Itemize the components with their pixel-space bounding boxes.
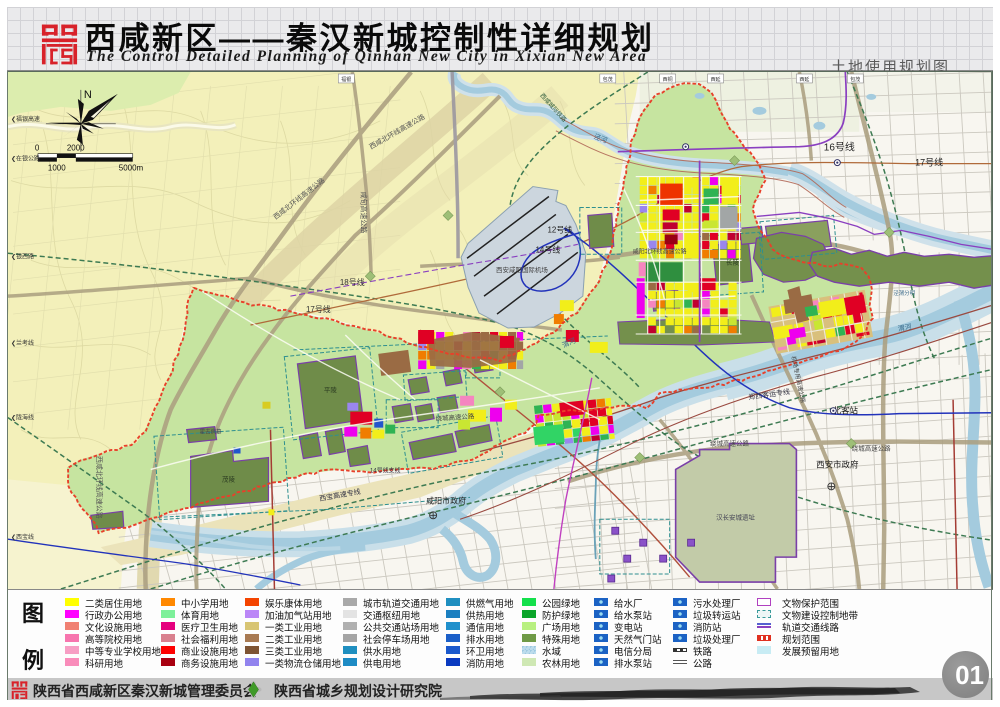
svg-text:❮西宝线: ❮西宝线 — [11, 533, 34, 541]
svg-text:包茂: 包茂 — [603, 76, 613, 83]
svg-text:福银: 福银 — [341, 76, 351, 83]
svg-text:17号线: 17号线 — [306, 304, 331, 314]
svg-text:西安市政府: 西安市政府 — [816, 459, 859, 469]
svg-text:长陵: 长陵 — [726, 257, 739, 266]
svg-text:16号线: 16号线 — [824, 141, 855, 154]
svg-text:14号线支线: 14号线支线 — [370, 466, 401, 474]
svg-text:西安咸阳国际机场: 西安咸阳国际机场 — [496, 265, 548, 274]
svg-text:1000: 1000 — [48, 164, 66, 173]
svg-text:0: 0 — [35, 144, 40, 153]
svg-text:西铜: 西铜 — [663, 76, 673, 83]
svg-text:西延: 西延 — [799, 76, 809, 83]
svg-text:霍去病墓: 霍去病墓 — [200, 428, 222, 436]
svg-text:咸阳市政府: 咸阳市政府 — [426, 495, 466, 505]
svg-text:平陵: 平陵 — [324, 385, 337, 394]
svg-text:西咸北环线高速公路: 西咸北环线高速公路 — [95, 456, 104, 519]
svg-text:2000: 2000 — [67, 144, 85, 153]
svg-text:绕城高速公路: 绕城高速公路 — [710, 439, 749, 448]
svg-text:茂陵: 茂陵 — [222, 474, 235, 483]
svg-text:18号线: 18号线 — [340, 277, 365, 287]
svg-text:N: N — [84, 89, 92, 101]
svg-text:西延: 西延 — [711, 76, 721, 83]
svg-text:包茂: 包茂 — [850, 76, 860, 83]
svg-text:❮在银公路: ❮在银公路 — [11, 155, 40, 163]
svg-text:5000m: 5000m — [119, 164, 144, 173]
svg-text:泾渭分明: 泾渭分明 — [893, 289, 915, 297]
svg-text:❮陇海线: ❮陇海线 — [11, 414, 34, 422]
svg-text:绕城高速公路: 绕城高速公路 — [852, 444, 891, 453]
svg-text:12号线: 12号线 — [547, 224, 572, 234]
svg-text:汉长安城遗址: 汉长安城遗址 — [716, 512, 755, 521]
svg-text:14号线: 14号线 — [535, 244, 560, 254]
svg-text:17号线: 17号线 — [915, 157, 943, 168]
svg-text:❮银西路: ❮银西路 — [11, 252, 34, 260]
svg-text:咸阳北环线高速公路: 咸阳北环线高速公路 — [633, 247, 687, 255]
svg-text:❮福银高速: ❮福银高速 — [11, 115, 40, 123]
svg-text:咸旬高速公路: 咸旬高速公路 — [359, 192, 368, 234]
svg-text:❮兰考线: ❮兰考线 — [11, 339, 34, 347]
